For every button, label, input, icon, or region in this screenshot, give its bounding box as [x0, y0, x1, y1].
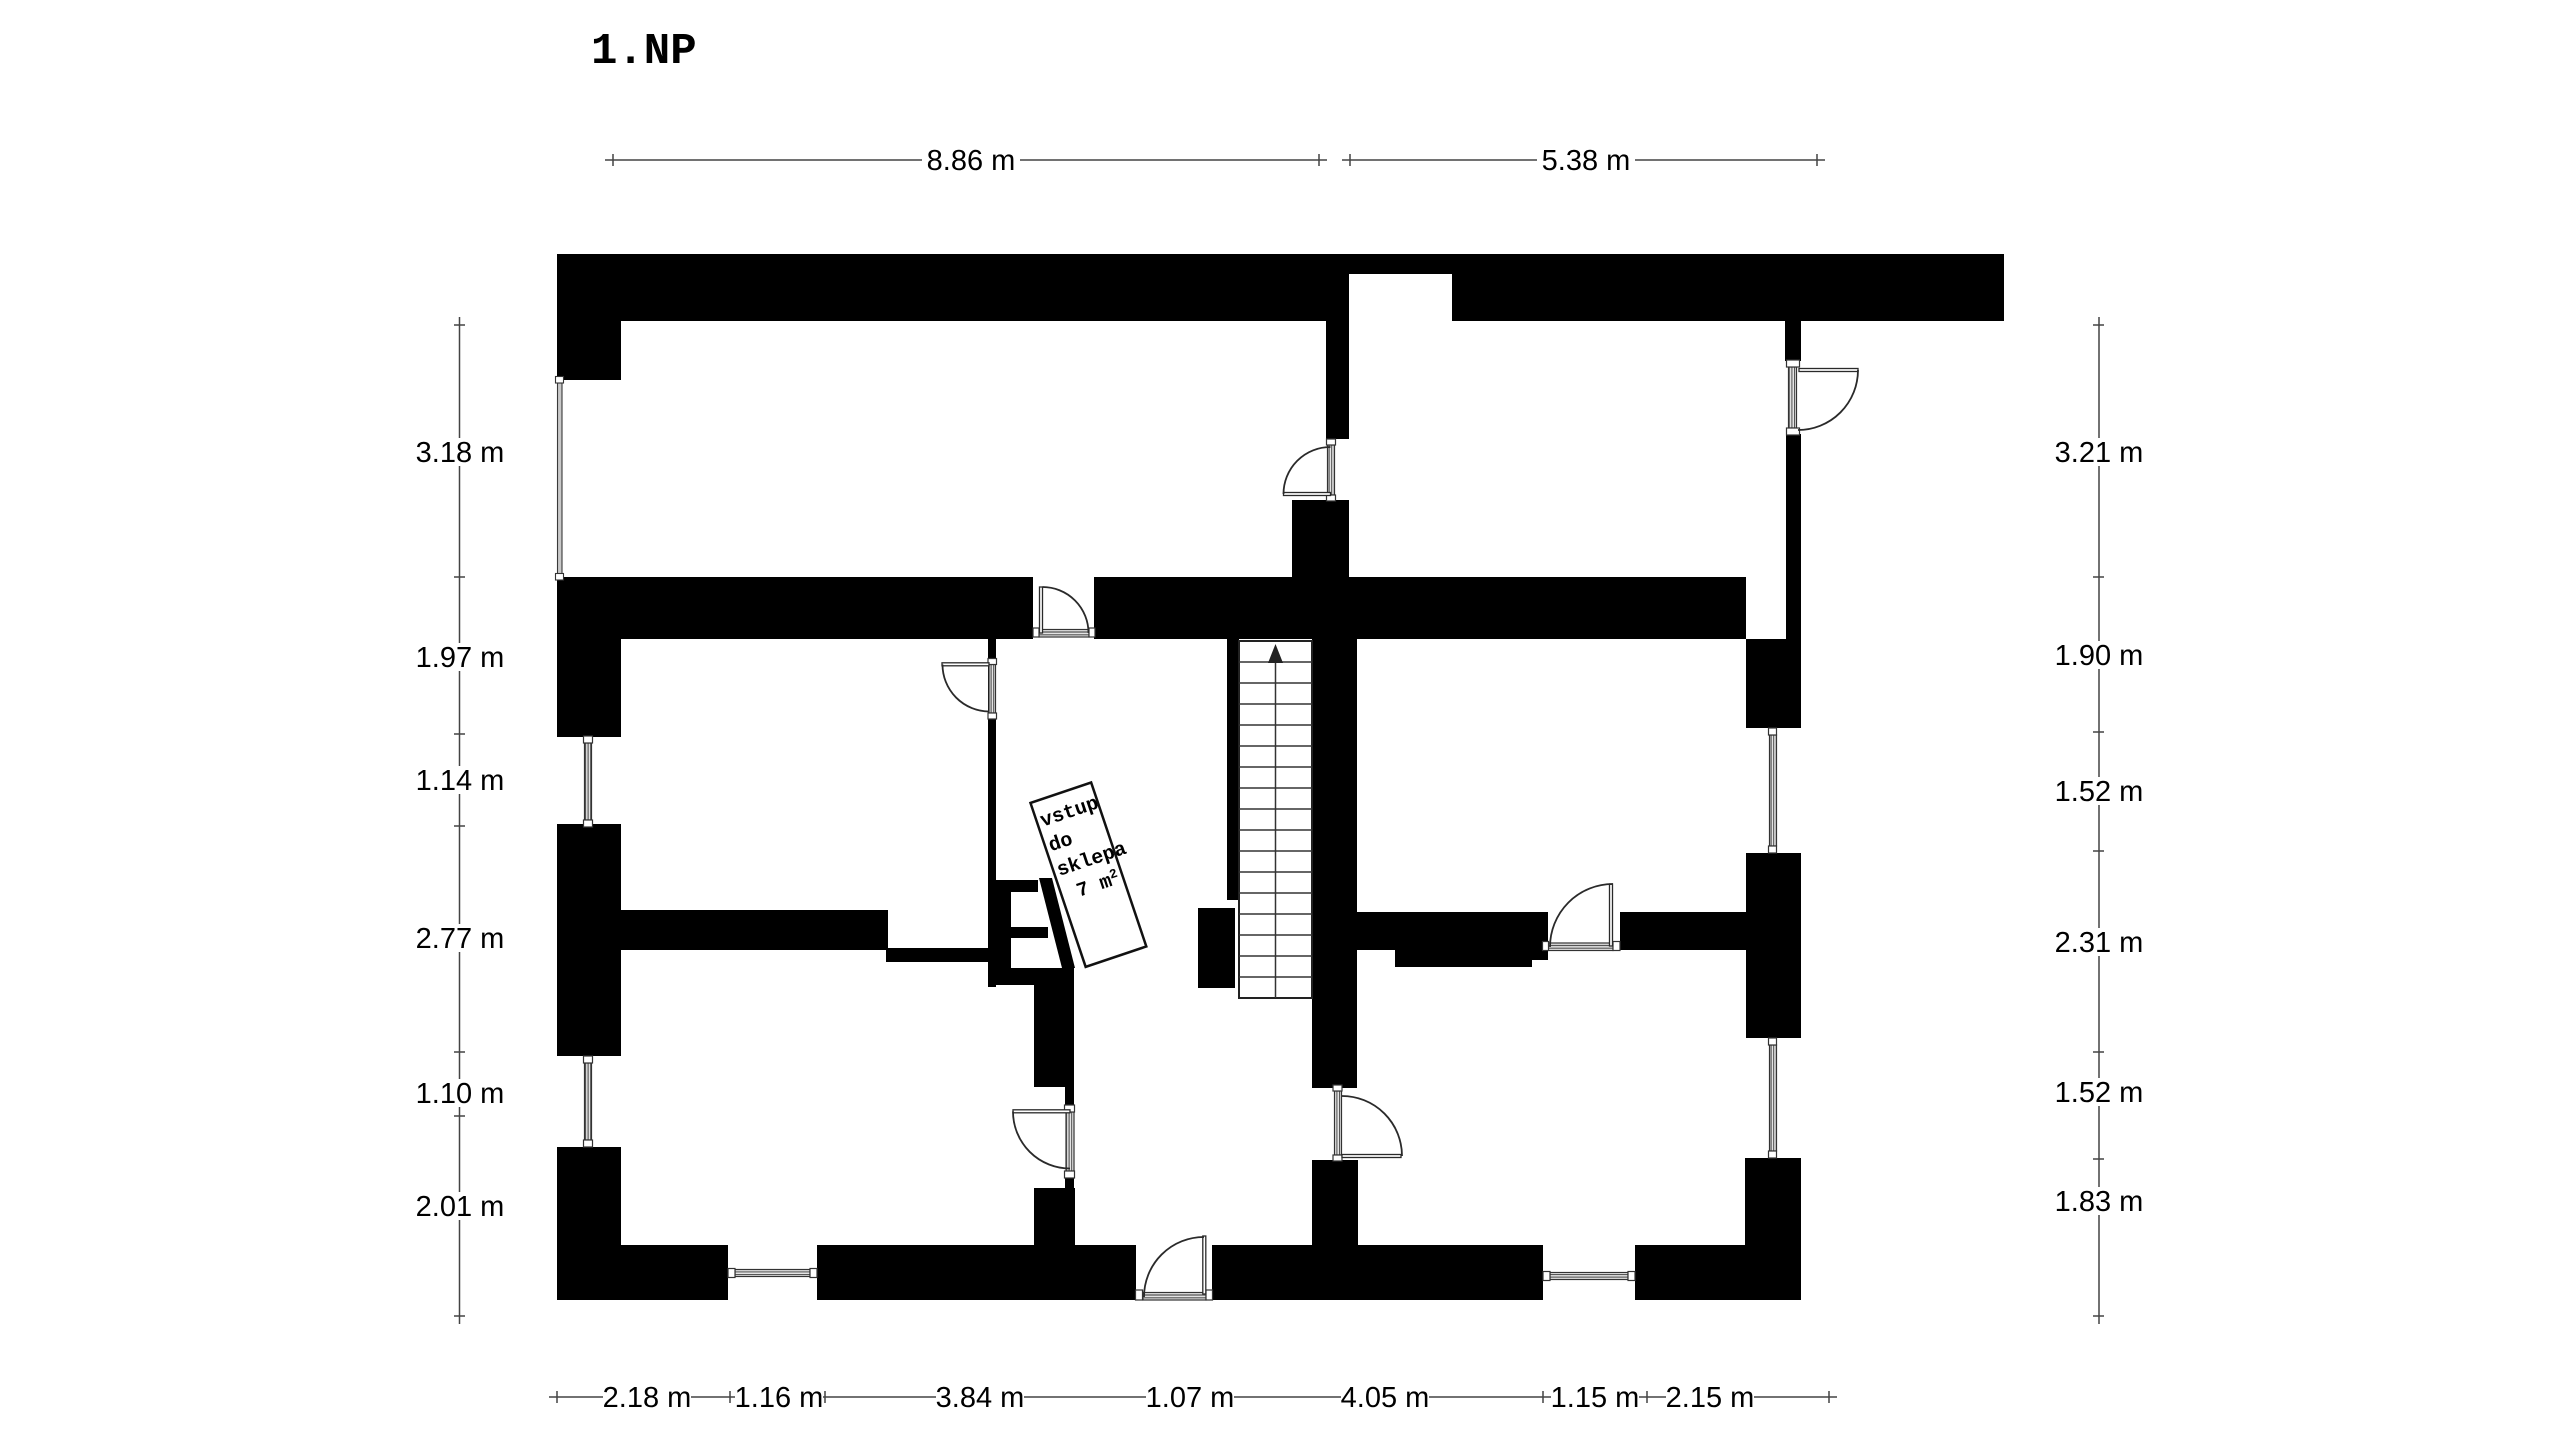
svg-text:1.97 m: 1.97 m [416, 642, 505, 674]
svg-text:1.16 m: 1.16 m [735, 1382, 824, 1414]
svg-text:1.07 m: 1.07 m [1146, 1382, 1235, 1414]
svg-text:3.21 m: 3.21 m [2055, 437, 2144, 469]
svg-text:5.38 m: 5.38 m [1542, 145, 1631, 177]
svg-text:2.15 m: 2.15 m [1666, 1382, 1755, 1414]
svg-text:1.NP: 1.NP [591, 27, 697, 77]
svg-text:1.14 m: 1.14 m [416, 765, 505, 797]
svg-text:1.90 m: 1.90 m [2055, 640, 2144, 672]
svg-text:1.52 m: 1.52 m [2055, 776, 2144, 808]
svg-text:3.84 m: 3.84 m [936, 1382, 1025, 1414]
svg-text:1.52 m: 1.52 m [2055, 1077, 2144, 1109]
svg-text:8.86 m: 8.86 m [927, 145, 1016, 177]
svg-text:1.10 m: 1.10 m [416, 1078, 505, 1110]
svg-text:4.05 m: 4.05 m [1341, 1382, 1430, 1414]
svg-text:1.15 m: 1.15 m [1551, 1382, 1640, 1414]
svg-text:3.18 m: 3.18 m [416, 437, 505, 469]
svg-text:2.01 m: 2.01 m [416, 1191, 505, 1223]
svg-text:2.77 m: 2.77 m [416, 923, 505, 955]
svg-text:2.31 m: 2.31 m [2055, 927, 2144, 959]
svg-text:2.18 m: 2.18 m [603, 1382, 692, 1414]
svg-text:1.83 m: 1.83 m [2055, 1186, 2144, 1218]
